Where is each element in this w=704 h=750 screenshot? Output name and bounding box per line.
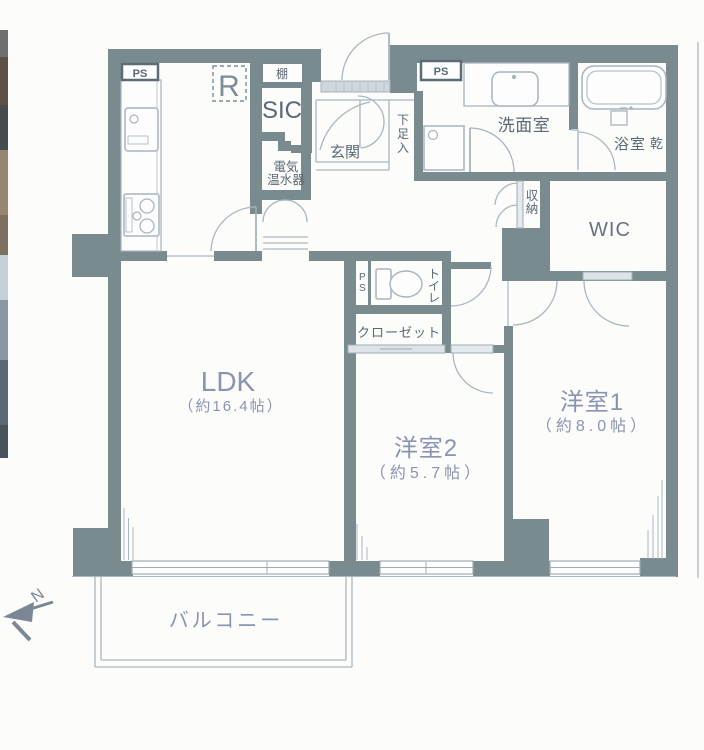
svg-text:乾: 乾 <box>650 136 663 151</box>
svg-text:入: 入 <box>397 141 409 155</box>
svg-text:S: S <box>359 283 366 294</box>
svg-text:（約16.4帖）: （約16.4帖） <box>178 398 283 415</box>
svg-text:R: R <box>218 70 240 103</box>
svg-text:PS: PS <box>434 66 449 78</box>
svg-text:洗面室: 洗面室 <box>498 116 551 135</box>
svg-text:WIC: WIC <box>589 219 631 241</box>
svg-text:納: 納 <box>526 202 539 216</box>
svg-text:洋室1: 洋室1 <box>560 389 624 416</box>
svg-text:玄関: 玄関 <box>330 144 360 161</box>
svg-text:下: 下 <box>397 113 409 127</box>
svg-text:P: P <box>359 272 366 283</box>
svg-text:（約5.7帖）: （約5.7帖） <box>370 464 484 482</box>
svg-text:SIC: SIC <box>262 97 302 124</box>
svg-text:レ: レ <box>428 291 440 305</box>
svg-text:クローゼット: クローゼット <box>357 325 441 340</box>
svg-text:LDK: LDK <box>201 366 256 397</box>
svg-text:電気: 電気 <box>273 159 298 174</box>
svg-text:温水器: 温水器 <box>267 173 305 187</box>
svg-text:収: 収 <box>526 189 539 203</box>
svg-text:（約8.0帖）: （約8.0帖） <box>536 417 650 435</box>
svg-text:PS: PS <box>133 68 148 80</box>
svg-text:浴室: 浴室 <box>614 136 646 153</box>
svg-text:足: 足 <box>397 127 409 141</box>
svg-text:棚: 棚 <box>276 66 288 81</box>
svg-text:バルコニー: バルコニー <box>169 610 284 632</box>
svg-text:洋室2: 洋室2 <box>394 435 458 462</box>
